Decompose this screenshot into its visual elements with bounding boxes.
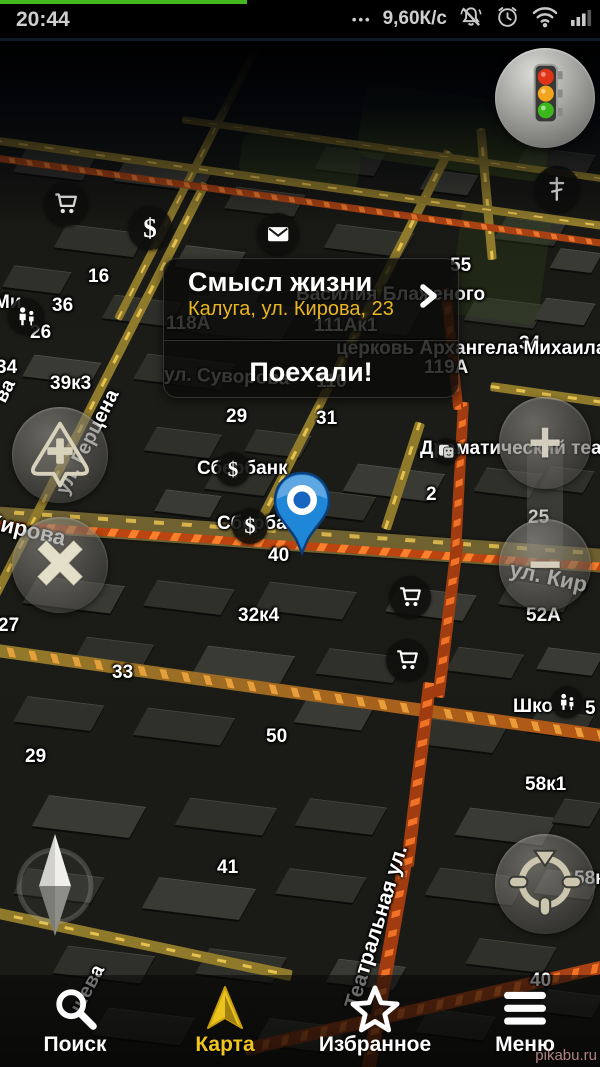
add-event-pin-icon (23, 416, 97, 495)
map-label: 2 (426, 484, 437, 506)
currency-icon: $ (128, 206, 172, 250)
map-label: 58к1 (525, 774, 566, 796)
map-building (536, 647, 600, 676)
close-icon (27, 530, 93, 601)
search-icon (52, 983, 98, 1035)
alarm-clock-icon (495, 4, 520, 34)
currency-icon: $ (216, 452, 250, 486)
map-building (2, 265, 72, 294)
tab-map[interactable]: Карта (150, 975, 300, 1067)
compass-needle-icon (15, 927, 95, 944)
map-label: 32к4 (238, 605, 279, 627)
cancel-route-button[interactable] (12, 517, 108, 613)
map-label: 29 (25, 746, 46, 768)
status-time: 20:44 (16, 8, 70, 32)
currency-icon: $ (232, 508, 268, 544)
map-label: 36 (52, 295, 73, 317)
status-dots: ••• (352, 12, 372, 27)
map-label: 33 (112, 662, 133, 684)
shopping-cart-icon (44, 182, 88, 226)
map-label: ва (0, 376, 21, 407)
map-building (13, 696, 105, 731)
map-label: 27 (0, 615, 19, 637)
plus-icon: + (528, 414, 562, 472)
go-button[interactable]: Поехали! (164, 341, 458, 403)
map-building (154, 489, 222, 518)
compass-button[interactable] (15, 828, 95, 945)
route-title: Смысл жизни (188, 267, 404, 297)
shopping-cart-icon (386, 639, 428, 681)
tab-favorites[interactable]: Избранное (300, 975, 450, 1067)
map-label: 50 (266, 726, 287, 748)
menu-icon (502, 983, 548, 1035)
watermark: pikabu.ru (535, 1047, 597, 1064)
tab-label: Избранное (319, 1033, 431, 1057)
chevron-right-icon (416, 281, 440, 316)
map-building (175, 797, 278, 835)
status-bar: 20:44 ••• 9,60К/с (0, 0, 600, 41)
theater-icon (433, 438, 459, 464)
zoom-in-button[interactable]: + (499, 397, 591, 489)
church-cross-icon (534, 166, 580, 212)
mail-icon (257, 213, 299, 255)
map-label: 5 (585, 698, 596, 720)
tab-label: Поиск (43, 1033, 106, 1057)
map-label: 16 (88, 266, 109, 288)
map-building (133, 707, 236, 745)
map-label: 41 (217, 857, 238, 879)
map-building (142, 877, 257, 920)
map-building (144, 427, 223, 459)
add-road-event-button[interactable] (12, 407, 108, 503)
map-label: 39к3 (50, 373, 91, 395)
star-icon (350, 983, 400, 1035)
navigation-arrow-icon (201, 983, 249, 1035)
locate-me-button[interactable] (495, 834, 595, 934)
destination-pin[interactable] (267, 467, 337, 564)
go-button-label: Поехали! (249, 357, 372, 388)
tab-search[interactable]: Поиск (0, 975, 150, 1067)
map-building (552, 798, 600, 826)
target-icon (505, 842, 585, 927)
map-label: 34 (0, 357, 17, 379)
map-building (465, 938, 557, 973)
bottom-tab-bar: ПоискКартаИзбранноеМеню (0, 975, 600, 1067)
screen: 163626Ми3439к32931Драматический театр2Сб… (0, 0, 600, 1067)
traffic-button[interactable] (495, 48, 595, 148)
map-building (446, 647, 525, 679)
signal-bars-icon (570, 6, 594, 33)
muted-bell-icon (458, 4, 484, 35)
map-building (143, 580, 235, 615)
status-bar-divider (0, 38, 600, 41)
map-building (534, 298, 596, 326)
traffic-light-icon (505, 56, 585, 141)
zoom-out-button[interactable]: − (499, 519, 591, 611)
notification-led (0, 0, 247, 4)
map-road (450, 402, 469, 552)
map-label: Шко (513, 696, 553, 718)
minus-icon: − (528, 536, 562, 594)
map-building (295, 798, 388, 835)
route-card: Смысл жизни Калуга, ул. Кирова, 23 Поеха… (163, 258, 459, 398)
wifi-icon (531, 5, 559, 34)
map-building (275, 868, 367, 903)
status-net-speed: 9,60К/с (383, 8, 447, 30)
tab-label: Карта (195, 1033, 254, 1057)
route-card-header[interactable]: Смысл жизни Калуга, ул. Кирова, 23 (164, 259, 458, 340)
family-icon (8, 298, 44, 334)
map-label: 31 (316, 408, 337, 430)
family-icon (551, 686, 583, 718)
shopping-cart-icon (389, 576, 431, 618)
route-address: Калуга, ул. Кирова, 23 (188, 298, 404, 321)
map-label: 29 (226, 406, 247, 428)
map-building (550, 248, 600, 273)
